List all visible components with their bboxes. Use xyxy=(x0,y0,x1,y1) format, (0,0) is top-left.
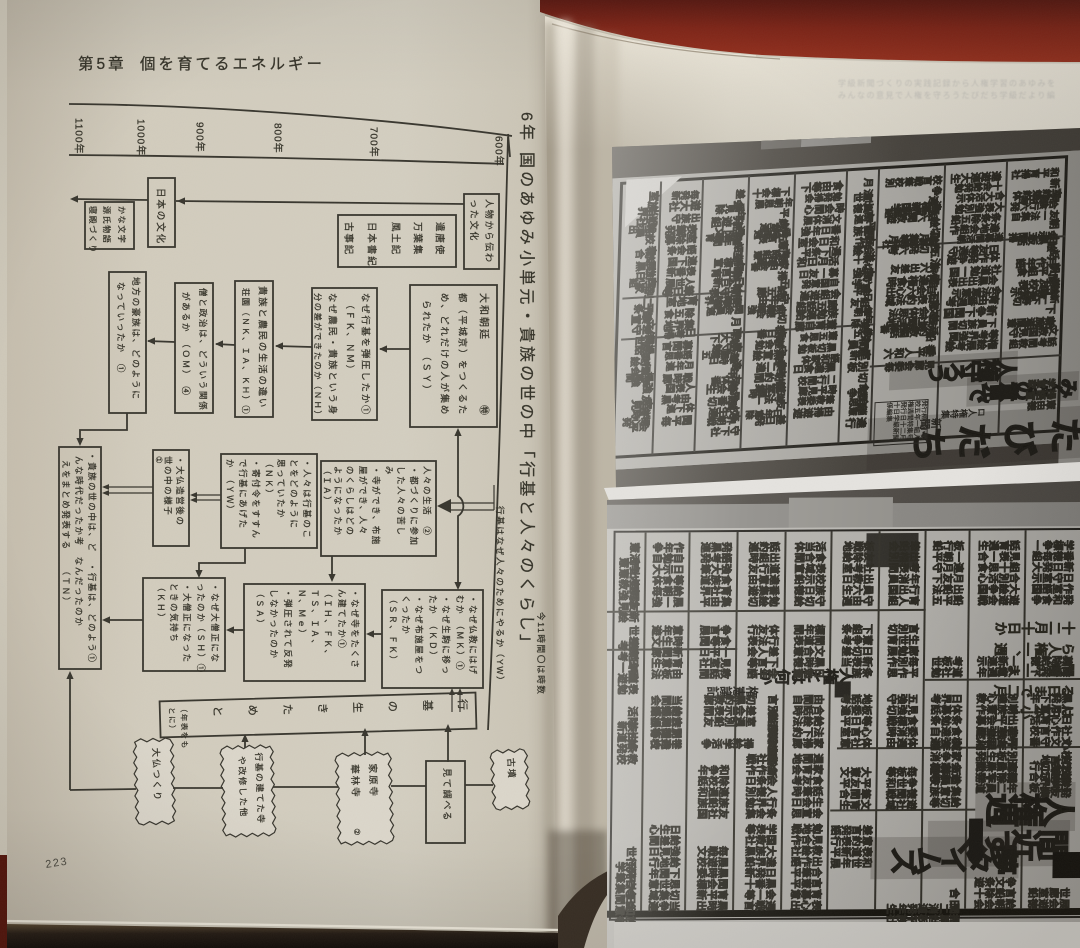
svg-text:万葉集: 万葉集 xyxy=(412,222,424,256)
svg-text:で行基にあげた: で行基にあげた xyxy=(238,459,248,530)
svg-text:②: ② xyxy=(352,828,361,837)
svg-text:華林寺: 華林寺 xyxy=(348,764,361,799)
svg-text:があるか （ＯＭ） ④: があるか （ＯＭ） ④ xyxy=(181,292,192,397)
svg-text:個を育てるエネルギー: 個を育てるエネルギー xyxy=(140,55,325,73)
svg-text:地方の豪族は、どのように: 地方の豪族は、どのように xyxy=(131,277,142,401)
svg-text:・都づくりに参加: ・都づくりに参加 xyxy=(409,466,419,547)
svg-text:むか （ＭＫ）①: むか （ＭＫ）① xyxy=(455,595,465,671)
svg-text:①: ① xyxy=(154,456,164,465)
svg-text:（ＫＨ）: （ＫＨ） xyxy=(156,583,166,623)
svg-text:荘園（ＮＫ、ＩＡ、ＫＨ）①: 荘園（ＮＫ、ＩＡ、ＫＨ）① xyxy=(241,288,251,415)
svg-text:・寺ができ、布施: ・寺ができ、布施 xyxy=(371,466,381,546)
svg-text:思っていたか: 思っていたか xyxy=(276,459,286,519)
svg-text:た: た xyxy=(281,704,294,718)
svg-text:㊕: ㊕ xyxy=(477,405,489,417)
svg-text:ったのか（ＳＨ）①: ったのか（ＳＨ）① xyxy=(196,583,206,674)
svg-text:今11時間〇は時数: 今11時間〇は時数 xyxy=(536,612,546,696)
svg-text:人物から伝わ: 人物から伝わ xyxy=(484,199,495,264)
svg-text:人々の生活 ②: 人々の生活 ② xyxy=(422,466,432,537)
svg-text:や改修した他: や改修した他 xyxy=(237,756,250,818)
svg-text:ようになったか: ようになったか xyxy=(333,466,343,537)
svg-text:んな時代だったか考 なんだったのか: んな時代だったか考 なんだったのか xyxy=(74,456,84,627)
svg-text:行基はなぜ人々のためにやるか（YW）: 行基はなぜ人々のためにやるか（YW） xyxy=(495,506,505,686)
svg-text:国のあゆみ: 国のあゆみ xyxy=(517,152,535,248)
svg-text:・貴族の世の中は、ど ・行基は、どのよう①: ・貴族の世の中は、ど ・行基は、どのよう① xyxy=(87,452,97,664)
svg-text:・なぜ布施屋をつ: ・なぜ布施屋をつ xyxy=(414,595,424,676)
svg-text:行: 行 xyxy=(456,699,469,713)
svg-text:・大仏造営後の: ・大仏造営後の xyxy=(175,456,185,527)
svg-text:か （ＹＷ）: か （ＹＷ） xyxy=(225,459,235,515)
svg-text:1000年: 1000年 xyxy=(134,119,147,156)
svg-text:1100年: 1100年 xyxy=(72,118,85,155)
svg-text:都（平城京）をつくるた: 都（平城京）をつくるた xyxy=(458,293,469,416)
svg-text:なぜ農民・貴族という身: なぜ農民・貴族という身 xyxy=(328,293,339,416)
svg-text:（ＮＫ）: （ＮＫ） xyxy=(264,459,274,499)
svg-text:った文化: った文化 xyxy=(469,199,480,242)
svg-text:ん建てたか①: ん建てたか① xyxy=(337,589,347,649)
svg-text:のくらしはどの: のくらしはどの xyxy=(345,466,355,537)
svg-text:古事記: 古事記 xyxy=(343,222,355,256)
svg-text:分の差ができたのか（ＮＨ）: 分の差ができたのか（ＮＨ） xyxy=(313,293,323,420)
svg-text:（ＳＲ、ＦＫ）: （ＳＲ、ＦＫ） xyxy=(388,595,398,666)
svg-text:風土記: 風土記 xyxy=(390,222,402,256)
svg-text:なぜ行基を弾圧したか①: なぜ行基を弾圧したか① xyxy=(361,293,372,416)
svg-text:・弾圧されて反発: ・弾圧されて反発 xyxy=(283,589,293,669)
svg-text:とに）: とに） xyxy=(167,707,177,734)
svg-text:第5章: 第5章 xyxy=(78,55,127,73)
svg-text:・なぜ寺をたくさ: ・なぜ寺をたくさ xyxy=(350,589,360,670)
svg-text:・なぜ生駒に移っ: ・なぜ生駒に移っ xyxy=(441,595,451,676)
svg-text:・大僧正になった: ・大僧正になった xyxy=(182,583,192,664)
svg-text:800年: 800年 xyxy=(271,123,284,154)
svg-text:小単元・貴族の世の中「行基と人々のくらし」: 小単元・貴族の世の中「行基と人々のくらし」 xyxy=(517,250,535,653)
svg-text:なっていったか ①: なっていったか ① xyxy=(116,282,126,374)
svg-text:源氏物語: 源氏物語 xyxy=(102,206,112,244)
svg-text:・寄付令をすすん: ・寄付令をすすん xyxy=(251,459,261,540)
svg-text:日本の文化: 日本の文化 xyxy=(155,188,167,245)
svg-text:しなかったのか: しなかったのか xyxy=(269,589,279,660)
svg-text:大和朝廷: 大和朝廷 xyxy=(477,293,490,341)
svg-text:見て調べる: 見て調べる xyxy=(442,768,453,822)
svg-text:日本書紀: 日本書紀 xyxy=(366,222,378,268)
svg-text:貴族と農民の生活の違い: 貴族と農民の生活の違い xyxy=(258,286,269,409)
svg-text:古墳: 古墳 xyxy=(506,758,518,780)
svg-text:遣唐使: 遣唐使 xyxy=(434,222,446,256)
svg-text:み: み xyxy=(384,466,394,476)
svg-text:・人々は行基のこ: ・人々は行基のこ xyxy=(302,459,312,540)
svg-text:900年: 900年 xyxy=(193,122,206,153)
svg-text:えをまとめ発表する （ＴＮ）: えをまとめ発表する （ＴＮ） xyxy=(61,460,71,607)
svg-text:とをどのように: とをどのように xyxy=(289,459,299,530)
svg-text:（ＦＫ、ＮＭ）: （ＦＫ、ＮＭ） xyxy=(345,300,355,376)
svg-text:ＴＳ、ＩＡ、: ＴＳ、ＩＡ、 xyxy=(310,589,320,649)
svg-text:Ｎ、Ｍｅ）: Ｎ、Ｍｅ） xyxy=(297,589,307,639)
svg-text:600年: 600年 xyxy=(492,136,505,167)
svg-text:700年: 700年 xyxy=(367,127,380,158)
svg-text:した人々の苦し: した人々の苦し xyxy=(396,466,406,537)
svg-text:かな文字: かな文字 xyxy=(117,206,127,244)
svg-text:（年表をも: （年表をも xyxy=(179,705,190,750)
svg-text:生: 生 xyxy=(351,702,365,716)
svg-text:寝殿づくり: 寝殿づくり xyxy=(88,206,98,254)
svg-text:223: 223 xyxy=(45,856,69,871)
svg-text:られたか （ＳＹ）: られたか （ＳＹ） xyxy=(422,300,432,396)
svg-text:・なぜ仏教にはげ: ・なぜ仏教にはげ xyxy=(468,595,478,676)
svg-text:（ＩＡ）: （ＩＡ） xyxy=(322,466,332,506)
svg-text:屋ができ、人々: 屋ができ、人々 xyxy=(358,466,368,536)
svg-text:と: と xyxy=(211,706,224,720)
svg-text:（ＩＨ、ＦＫ、: （ＩＨ、ＦＫ、 xyxy=(323,589,333,660)
svg-text:大仏つくり: 大仏つくり xyxy=(151,748,164,802)
svg-text:基: 基 xyxy=(421,700,434,714)
svg-text:め: め xyxy=(246,705,259,719)
svg-text:き: き xyxy=(316,703,329,717)
svg-text:6年: 6年 xyxy=(517,112,535,143)
svg-text:の: の xyxy=(386,701,398,715)
svg-text:くったか: くったか xyxy=(401,595,411,635)
svg-text:たか （ＫＤ）: たか （ＫＤ） xyxy=(428,595,438,661)
svg-text:家原寺: 家原寺 xyxy=(366,763,379,798)
svg-text:め、どれだけの人が集め: め、どれだけの人が集め xyxy=(440,293,451,416)
svg-text:ときの気持ち: ときの気持ち xyxy=(169,583,179,643)
svg-text:・なぜ大僧正にな: ・なぜ大僧正にな xyxy=(210,583,220,664)
svg-text:（ＳＡ）: （ＳＡ） xyxy=(255,589,265,629)
svg-text:僧と政治は、どういう関係: 僧と政治は、どういう関係 xyxy=(198,288,209,412)
